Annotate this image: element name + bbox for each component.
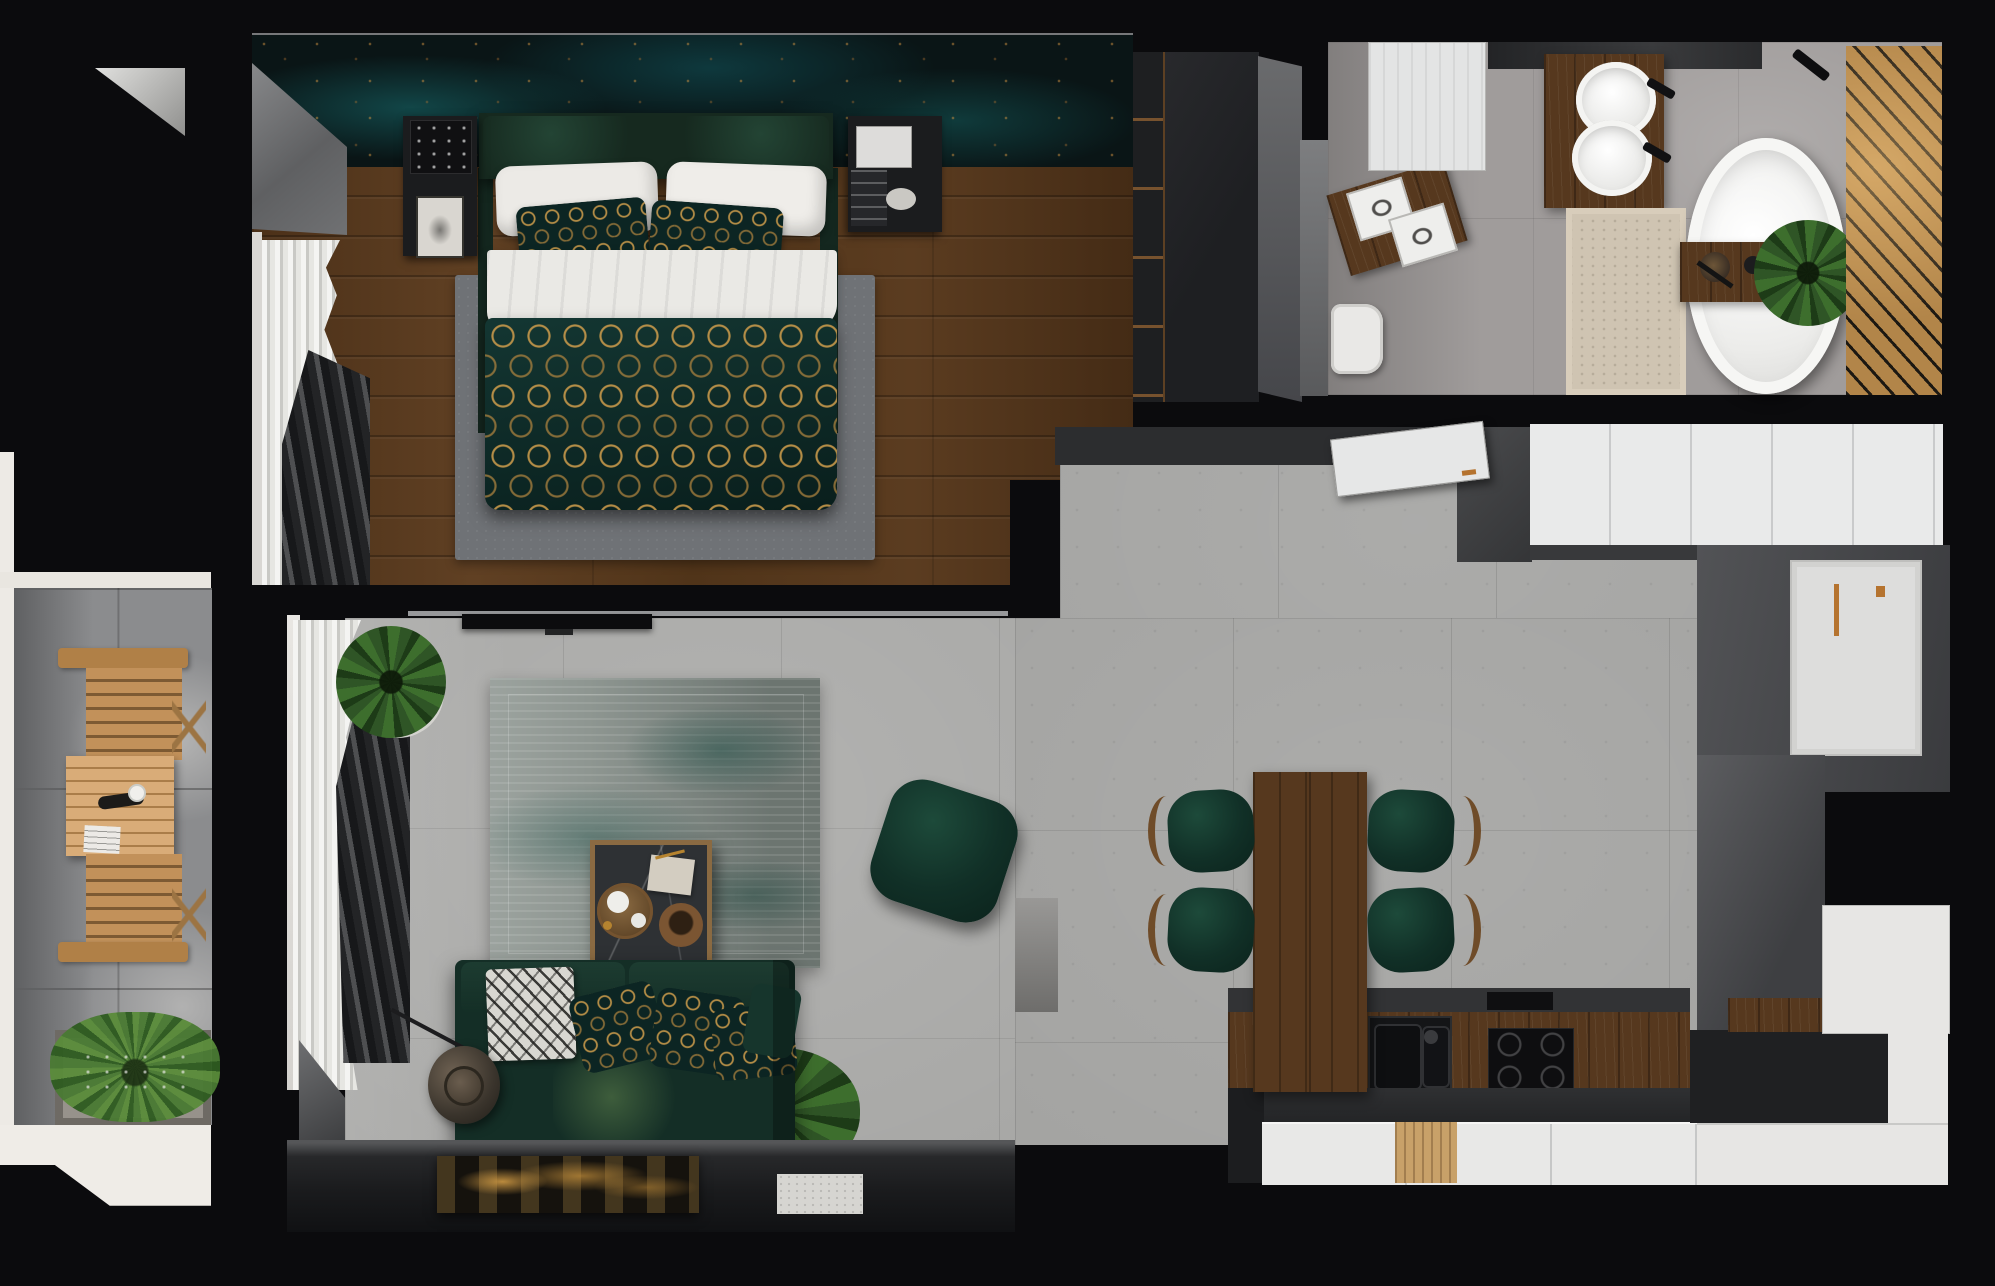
magazine <box>83 825 120 854</box>
bathroom-wood-deck <box>1846 46 1942 395</box>
kitchen-counter-edge <box>1228 1088 1690 1124</box>
hall-wall-column <box>1015 898 1058 1012</box>
tv-stand <box>545 629 573 635</box>
white-floor-mat <box>777 1174 863 1214</box>
round-sink-2 <box>1572 120 1652 196</box>
kitchen-base-cabinets <box>1262 1122 1698 1185</box>
kitchen-sink-basin-left <box>1374 1024 1422 1090</box>
sofa-right-arm-shade <box>773 960 795 1148</box>
kitchen-window-band-3 <box>1697 1123 1948 1185</box>
balcony-grass-flowers <box>80 1050 190 1100</box>
candle-small <box>631 913 646 928</box>
sofa-throw-blanket <box>485 966 576 1061</box>
wardrobe-drawer-stack <box>1133 52 1165 402</box>
balcony-chair-top-seat <box>86 668 182 760</box>
sofa <box>455 960 795 1148</box>
coffee-cup <box>128 784 146 802</box>
nightstand-books <box>851 170 887 226</box>
balcony-chair-bottom-seat <box>86 854 182 944</box>
balcony-outer-wall-strip <box>0 452 14 1165</box>
balcony-chair-bottom-legs <box>172 878 206 952</box>
dining-chair-top-right-back <box>1444 796 1481 866</box>
bathroom-left-wall <box>1300 140 1328 396</box>
bedroom-right-wall-wedge <box>1258 56 1302 402</box>
dining-chair-bottom-right <box>1366 886 1456 974</box>
kitchen-counter-shadow <box>1530 545 1700 560</box>
dining-chair-bottom-right-back <box>1444 894 1481 966</box>
floor-lamp-inner <box>444 1066 484 1106</box>
kitchen-white-upper-cabinets <box>1530 424 1943 548</box>
apartment-floorplan-render <box>0 0 1995 1286</box>
living-plant-top <box>336 626 446 738</box>
bathroom-tall-cabinet <box>1368 42 1486 171</box>
nightstand-dish <box>886 188 916 210</box>
dining-table <box>1253 772 1367 1092</box>
wooden-bowl <box>659 903 703 947</box>
bedroom-window-sill <box>252 232 262 585</box>
balcony-bottom-white-edge <box>0 1125 211 1210</box>
bed-patterned-duvet <box>485 318 837 510</box>
candle-large <box>607 891 629 913</box>
dining-chair-top-right <box>1366 788 1456 874</box>
balcony-chair-bottom-backbar <box>58 942 188 962</box>
speaker-box <box>410 120 472 174</box>
kitchen-counter-right-dark <box>1690 1030 1888 1123</box>
notebook <box>647 854 695 895</box>
dishwasher-wood-front <box>1395 1122 1457 1183</box>
tv <box>462 614 652 629</box>
coffee-table <box>590 840 712 965</box>
dining-chair-bottom-left-back <box>1148 894 1185 966</box>
kitchen-vent <box>1487 992 1553 1010</box>
kitchen-sink-faucet <box>1424 1030 1438 1044</box>
balcony-chair-top-backbar <box>58 648 188 668</box>
nightstand-tray <box>856 126 912 168</box>
entrance-door-handle <box>1834 584 1839 636</box>
leaning-artwork <box>437 1156 699 1213</box>
hall-tall-cabinets <box>1697 755 1825 1032</box>
toilet <box>1331 304 1383 374</box>
entrance-door <box>1790 560 1922 756</box>
kitchen-counter-end-wood <box>1728 998 1825 1032</box>
balcony-top-band <box>0 572 211 588</box>
balcony-chair-top-legs <box>172 690 206 764</box>
dining-chair-top-left-back <box>1148 796 1185 866</box>
gold-trinket <box>603 921 612 930</box>
exterior-wall-cap <box>95 68 185 136</box>
nightstand-art-frame <box>416 196 464 258</box>
kitchen-window-band-1 <box>1822 905 1950 1034</box>
kitchen-window-band-2 <box>1888 1032 1948 1125</box>
entrance-door-lock <box>1876 586 1885 597</box>
kitchen-cooktop <box>1488 1028 1574 1094</box>
coffee-table-tray <box>597 883 653 939</box>
kitchen-counter-end-dark <box>1228 1088 1264 1183</box>
bathroom-beige-rug <box>1566 208 1686 395</box>
